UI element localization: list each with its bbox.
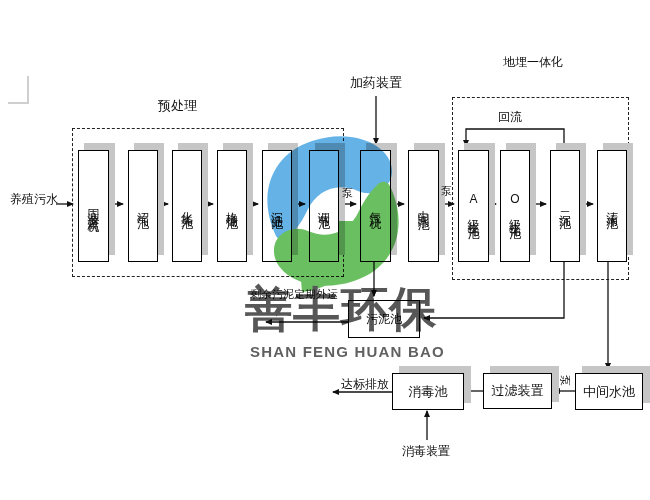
stage-label: 格栅池 bbox=[226, 202, 238, 211]
box-label: 污泥池 bbox=[366, 311, 402, 328]
stage-label: O级生化池 bbox=[509, 192, 521, 221]
box-label: 过滤装置 bbox=[492, 382, 544, 400]
stage-label: 沼气池 bbox=[137, 202, 149, 211]
stage-label: 沉淀池 bbox=[271, 202, 283, 211]
stage-label: 中间水池 bbox=[418, 200, 430, 212]
discharge-label: 达标排放 bbox=[341, 376, 389, 393]
filter-device-box: 过滤装置 bbox=[483, 373, 552, 409]
stage-box-biogas-pool: 沼气池 bbox=[128, 150, 158, 262]
stage-label: A级生化池 bbox=[468, 192, 480, 221]
intermediate-pool-2-box: 中间水池 bbox=[575, 373, 643, 410]
stage-box-air-flotation: 气浮机 bbox=[360, 150, 391, 262]
influent-label: 养殖污水 bbox=[10, 191, 58, 208]
stage-label: 固液分离机 bbox=[88, 199, 100, 214]
disinfect-pool-box: 消毒池 bbox=[392, 373, 464, 410]
disinfect-device-label: 消毒装置 bbox=[402, 443, 450, 460]
process-flow-diagram: 养殖污水 预处理 加药装置 地埋一体化 回流 泵 泵 泵 剩余污泥定期外运 达标… bbox=[0, 0, 650, 500]
dosing-device-label: 加药装置 bbox=[350, 74, 402, 92]
pump-label-1: 泵 bbox=[342, 186, 353, 201]
stage-box-clear-water-pool: 清水池 bbox=[597, 150, 627, 262]
reflux-label: 回流 bbox=[498, 109, 522, 126]
stage-box-grid-pool: 格栅池 bbox=[217, 150, 247, 262]
stage-box-a-bio-pool: A级生化池 bbox=[458, 150, 489, 262]
box-label: 中间水池 bbox=[583, 383, 635, 401]
box-label: 消毒池 bbox=[409, 383, 448, 401]
sludge-pool-box: 污泥池 bbox=[348, 300, 420, 338]
buried-integrated-label: 地埋一体化 bbox=[503, 54, 563, 71]
stage-box-sedimentation-pool: 沉淀池 bbox=[262, 150, 292, 262]
sludge-out-label: 剩余污泥定期外运 bbox=[250, 287, 338, 302]
stage-label: 清水池 bbox=[606, 202, 618, 211]
stage-box-regulating-pool: 调节池 bbox=[309, 150, 339, 262]
stage-label: 化粪池 bbox=[181, 202, 193, 211]
stage-box-solid-liquid-separator: 固液分离机 bbox=[78, 150, 109, 262]
stage-box-septic-pool: 化粪池 bbox=[172, 150, 202, 262]
stage-box-o-bio-pool: O级生化池 bbox=[500, 150, 530, 262]
stage-label: 二沉池 bbox=[559, 202, 571, 211]
pretreatment-label: 预处理 bbox=[158, 97, 197, 115]
pump-label-2: 泵 bbox=[441, 184, 452, 199]
pump-label-3: 泵 bbox=[557, 375, 572, 386]
stage-box-intermediate-pool-1: 中间水池 bbox=[408, 150, 439, 262]
stage-label: 调节池 bbox=[318, 202, 330, 211]
stage-label: 气浮机 bbox=[370, 202, 382, 211]
stage-box-secondary-sedimentation: 二沉池 bbox=[550, 150, 580, 262]
